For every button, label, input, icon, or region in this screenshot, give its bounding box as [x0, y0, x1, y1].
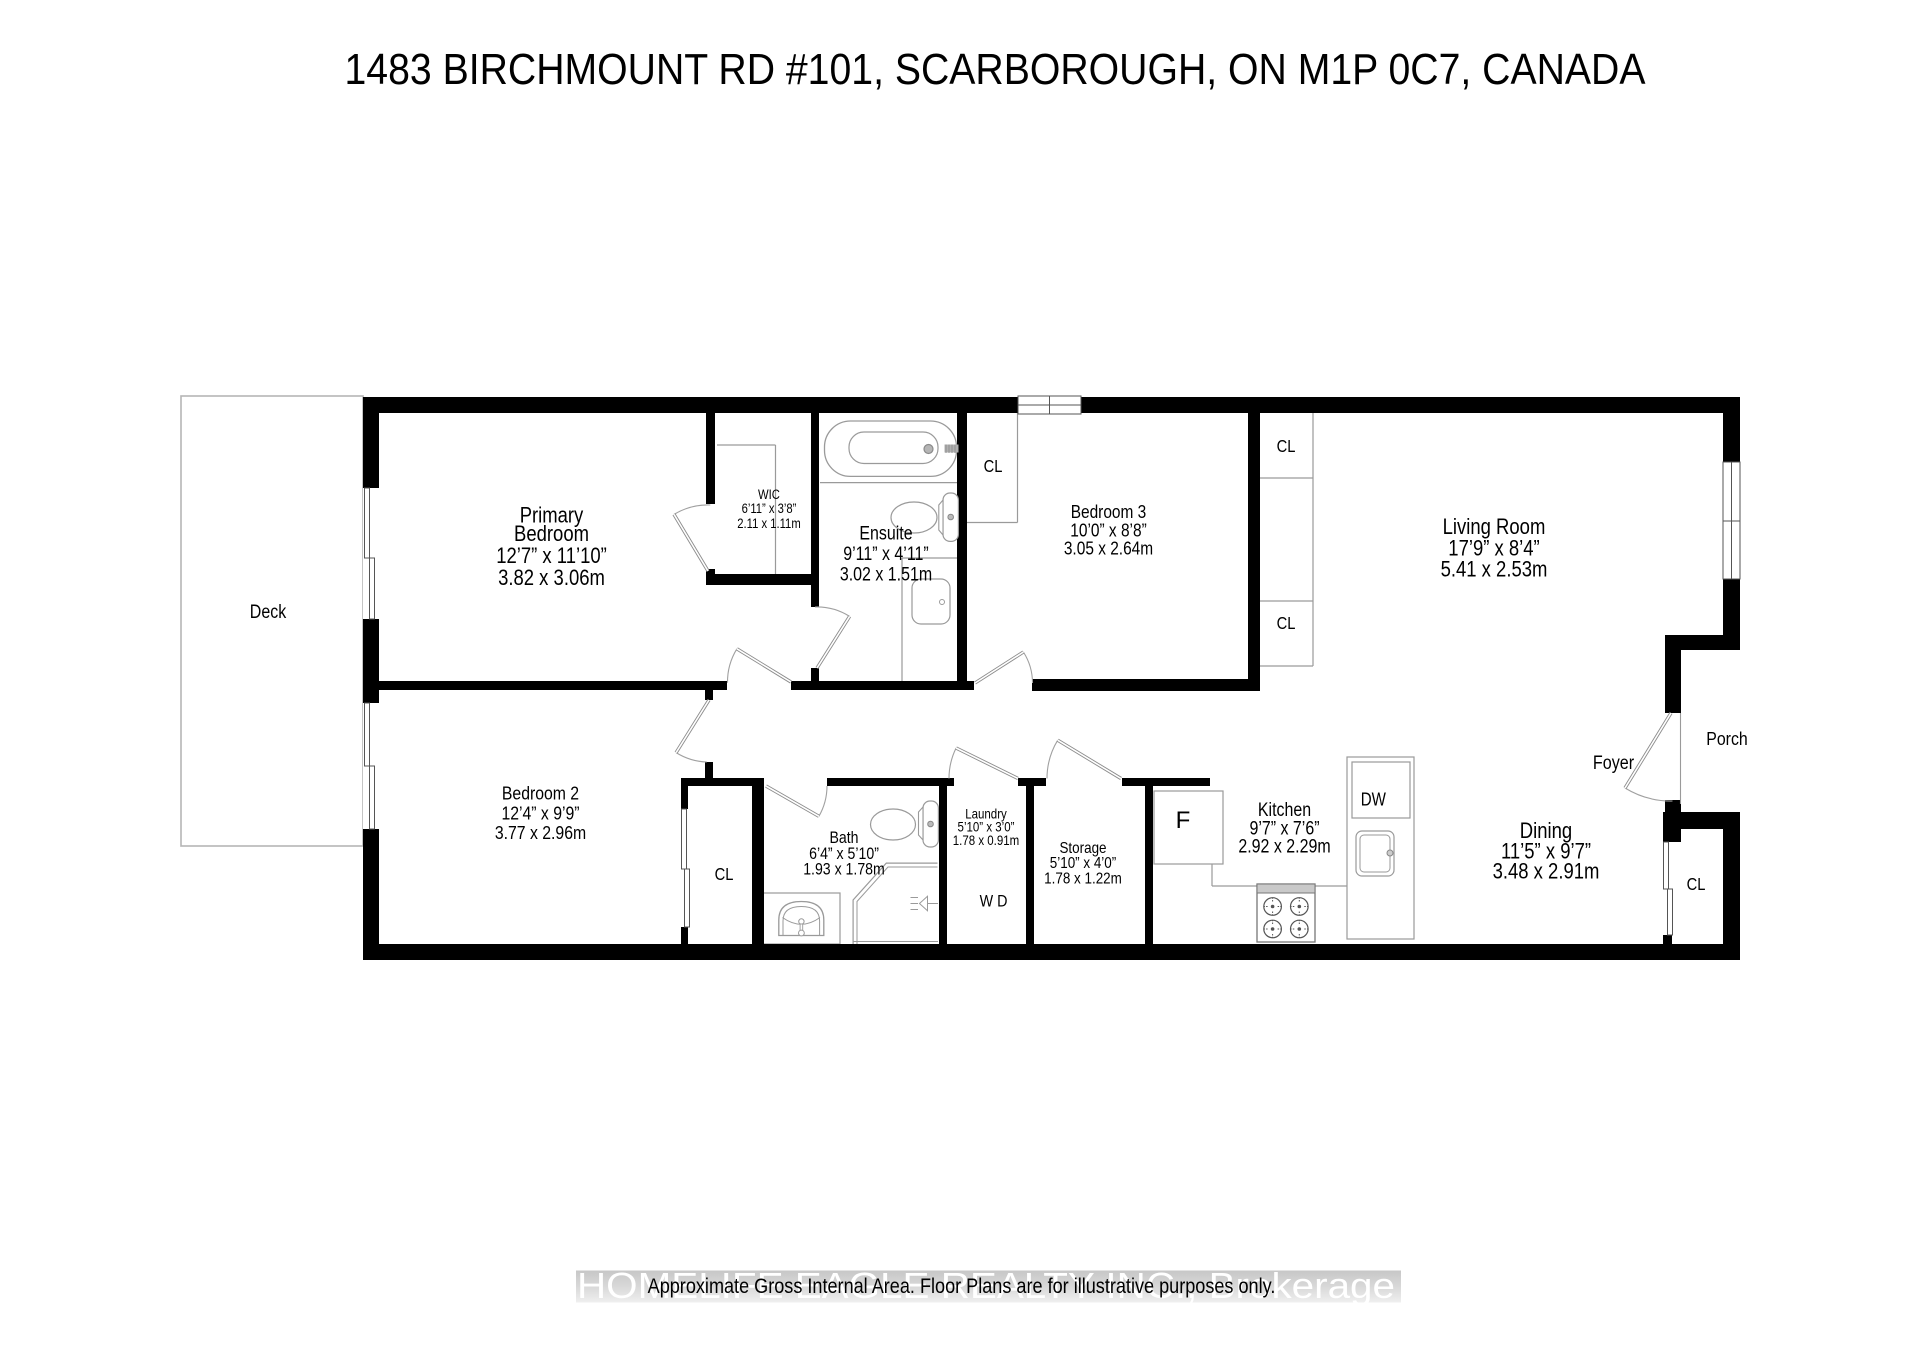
svg-text:1.78 x 1.22m: 1.78 x 1.22m — [1044, 870, 1122, 887]
svg-text:Deck: Deck — [250, 602, 287, 623]
svg-text:5.41 x 2.53m: 5.41 x 2.53m — [1441, 557, 1548, 582]
svg-text:CL: CL — [1687, 874, 1706, 894]
svg-text:6’11” x 3’8”: 6’11” x 3’8” — [742, 501, 797, 516]
svg-text:9’11” x 4’11”: 9’11” x 4’11” — [843, 544, 929, 565]
svg-text:CL: CL — [984, 456, 1003, 476]
svg-text:W D: W D — [980, 892, 1008, 911]
svg-text:F: F — [1176, 807, 1191, 834]
svg-text:WIC: WIC — [758, 487, 780, 502]
svg-text:1.78 x 0.91m: 1.78 x 0.91m — [953, 833, 1020, 848]
svg-text:Ensuite: Ensuite — [859, 524, 912, 545]
svg-text:2.92 x 2.29m: 2.92 x 2.29m — [1238, 836, 1330, 857]
svg-text:1.93 x 1.78m: 1.93 x 1.78m — [803, 860, 885, 879]
svg-text:DW: DW — [1361, 790, 1386, 810]
svg-text:3.82 x 3.06m: 3.82 x 3.06m — [498, 565, 605, 590]
svg-text:Porch: Porch — [1706, 729, 1748, 750]
svg-text:Approximate Gross Internal Are: Approximate Gross Internal Area. Floor P… — [648, 1274, 1276, 1298]
svg-text:3.77 x 2.96m: 3.77 x 2.96m — [495, 822, 586, 843]
svg-text:12’4” x 9’9”: 12’4” x 9’9” — [501, 802, 579, 823]
svg-text:1483 BIRCHMOUNT RD #101, SCARB: 1483 BIRCHMOUNT RD #101, SCARBOROUGH, ON… — [345, 45, 1647, 94]
svg-text:CL: CL — [1277, 436, 1296, 456]
svg-text:2.11 x 1.11m: 2.11 x 1.11m — [737, 516, 800, 531]
svg-text:Bedroom 2: Bedroom 2 — [502, 783, 579, 804]
svg-text:CL: CL — [1277, 613, 1296, 633]
svg-text:3.48 x 2.91m: 3.48 x 2.91m — [1493, 859, 1600, 884]
svg-text:Foyer: Foyer — [1593, 753, 1635, 774]
svg-text:3.05 x 2.64m: 3.05 x 2.64m — [1064, 538, 1153, 559]
svg-text:CL: CL — [715, 864, 734, 884]
svg-text:3.02 x 1.51m: 3.02 x 1.51m — [840, 565, 932, 586]
